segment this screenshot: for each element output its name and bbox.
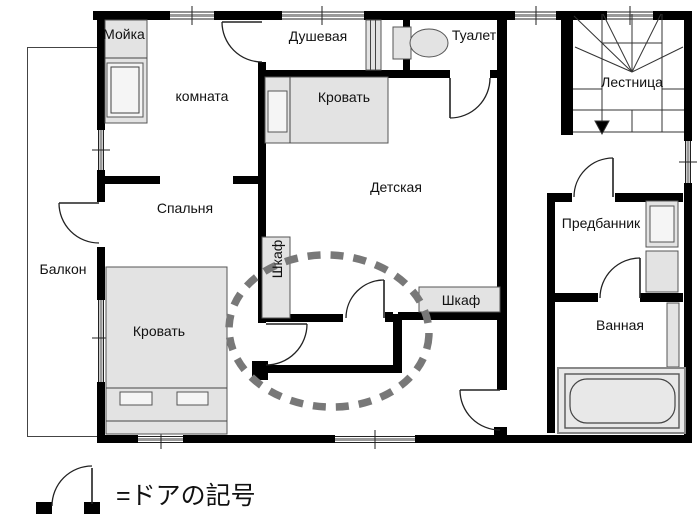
wall-under-wardrobe (398, 312, 500, 320)
legend: =ドアの記号 (36, 466, 256, 514)
anteroom-cabinet (646, 201, 678, 292)
balcony-door-opening (96, 202, 107, 247)
window (92, 130, 110, 170)
room-label-utility: Мойка (103, 26, 145, 42)
door-icon (600, 258, 640, 298)
shower-partition-icon (366, 20, 381, 70)
room-label-bedroom: Спальня (157, 200, 213, 216)
door-icon (460, 390, 500, 430)
room-label-anteroom: Предбанник (562, 215, 641, 231)
floor-plan-page: Мойка комната Душевая Туалет Лестница Де… (0, 0, 700, 520)
wall-corridor-jamb (385, 312, 393, 322)
wall-nursery-corridor (497, 20, 507, 390)
window (335, 430, 415, 449)
furniture-label-wardrobe-left: Шкаф (269, 240, 285, 279)
room-label-balcony: Балкон (40, 261, 87, 277)
door-icon (574, 158, 613, 197)
room-label-toilet: Туалет (452, 27, 497, 43)
door-icon (266, 324, 307, 365)
wall-bathroom-top-left (555, 293, 598, 302)
wall-room-bedroom-left (105, 176, 160, 184)
window (607, 6, 653, 25)
washing-machine-icon (107, 63, 143, 117)
bathtub-icon (558, 368, 685, 433)
toilet-icon (393, 27, 448, 59)
door-legend-icon (36, 466, 100, 514)
furniture-label-wardrobe-right: Шкаф (442, 292, 481, 308)
furniture-label-bed-bottom: Кровать (133, 323, 185, 339)
wall-corridor-right (393, 314, 402, 373)
door-post-hall (494, 427, 507, 436)
door-icon (59, 203, 99, 243)
window (679, 141, 697, 183)
room-label-nursery: Детская (370, 179, 422, 195)
room-label-room: комната (176, 88, 229, 104)
room-label-bathroom: Ванная (596, 317, 644, 333)
wall-room-bedroom-right (233, 176, 266, 184)
floor-plan-drawing: Мойка комната Душевая Туалет Лестница Де… (0, 0, 700, 520)
towel-rail-icon (667, 303, 679, 367)
legend-label: =ドアの記号 (116, 482, 256, 510)
window (515, 6, 556, 25)
room-label-shower: Душевая (289, 28, 347, 44)
bed-top (265, 77, 388, 143)
bed-bottom (106, 267, 227, 434)
door-icon (450, 78, 490, 118)
door-icon (222, 22, 262, 62)
wall-corridor-bottom (266, 365, 402, 373)
window (170, 6, 214, 25)
room-label-stairs: Лестница (601, 74, 663, 90)
wall-bathroom-top-right (640, 293, 683, 302)
wall-stairs-left (561, 11, 573, 135)
window (282, 6, 364, 25)
furniture-label-bed-top: Кровать (318, 89, 370, 105)
door-icon (346, 280, 384, 318)
wall-anteroom-bathroom-left (547, 193, 555, 433)
